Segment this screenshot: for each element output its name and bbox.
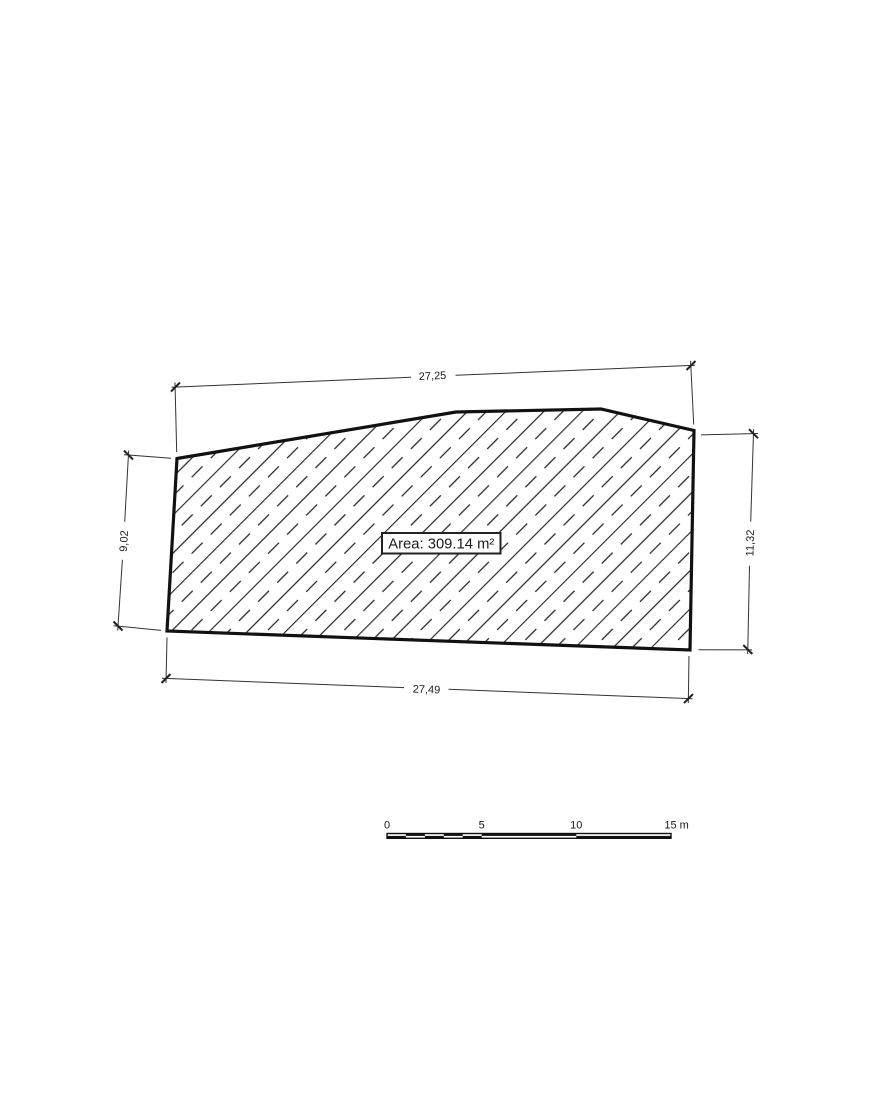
svg-text:27,49: 27,49 [412, 683, 440, 696]
svg-text:15 m: 15 m [664, 820, 688, 832]
svg-text:11,32: 11,32 [744, 530, 757, 557]
svg-text:0: 0 [384, 820, 390, 832]
svg-text:5: 5 [479, 820, 485, 832]
svg-text:9,02: 9,02 [118, 530, 131, 552]
svg-text:27,25: 27,25 [419, 370, 447, 383]
svg-text:Area: 309.14 m²: Area: 309.14 m² [388, 536, 494, 552]
svg-text:10: 10 [570, 820, 582, 832]
